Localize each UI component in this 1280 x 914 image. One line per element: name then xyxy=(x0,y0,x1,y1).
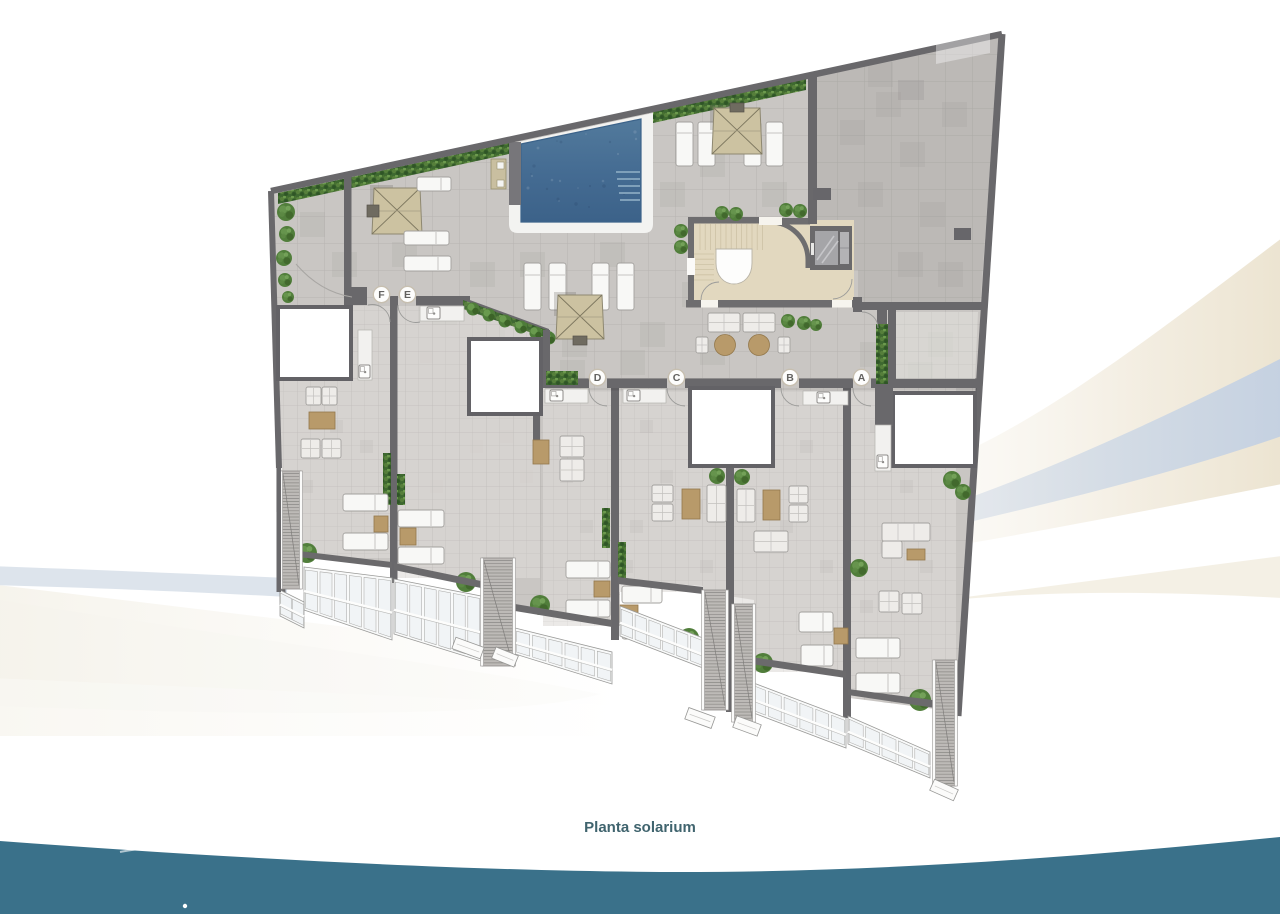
svg-text:F: F xyxy=(378,289,385,301)
svg-text:E: E xyxy=(404,289,411,301)
svg-text:Planta solarium: Planta solarium xyxy=(584,819,696,836)
svg-text:A: A xyxy=(858,372,866,384)
svg-text:D: D xyxy=(594,372,602,384)
svg-text:C: C xyxy=(673,372,681,384)
svg-text:B: B xyxy=(786,372,794,384)
